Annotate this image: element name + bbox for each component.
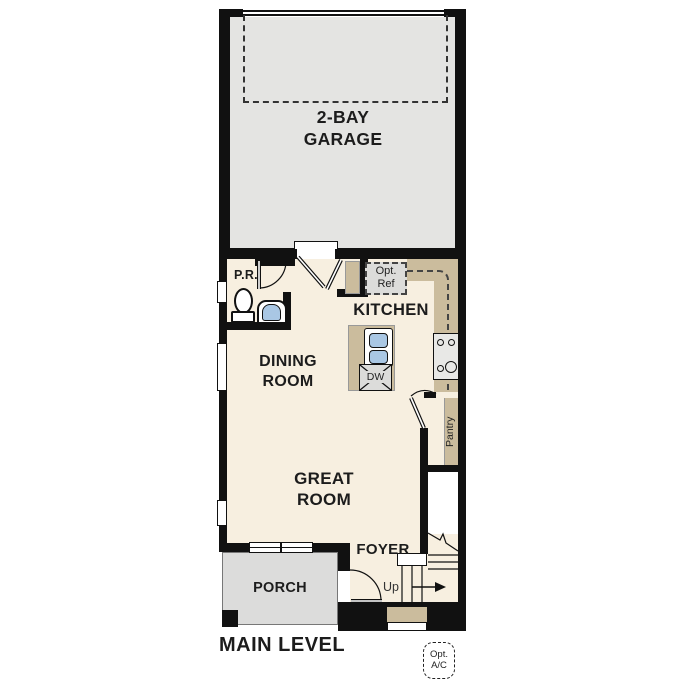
- entry-step: [387, 622, 427, 631]
- pantry-stair-west-wall: [420, 428, 428, 554]
- garage-bottom-wall: [219, 248, 466, 259]
- floor-plan: Opt. Ref Pantry Opt. A/C: [0, 0, 687, 687]
- plan-title: MAIN LEVEL: [219, 633, 379, 658]
- burner: [437, 365, 444, 372]
- right-exterior-wall: [458, 259, 466, 631]
- garage-right-wall: [455, 9, 466, 259]
- porch-post: [222, 610, 238, 627]
- burner: [448, 339, 455, 346]
- stove: [433, 333, 459, 380]
- porch-label: PORCH: [230, 579, 330, 597]
- garage-door-track-dashed-outline: [243, 15, 448, 103]
- powder-room-sink-basin: [262, 304, 281, 321]
- entry-stoop: [387, 607, 427, 622]
- pantry-north-stub: [424, 392, 436, 398]
- powder-room-label: P.R.: [228, 268, 264, 284]
- great-room-label: GREAT ROOM: [274, 468, 374, 511]
- pantry-south-wall: [420, 465, 466, 472]
- powder-room-north-stub: [255, 259, 295, 266]
- foyer-label: FOYER: [353, 541, 413, 560]
- pantry-label: Pantry: [444, 402, 458, 462]
- garage-entry-opening: [295, 249, 337, 259]
- entry-cabinet: [345, 261, 360, 294]
- optional-refrigerator-label: Opt. Ref: [365, 265, 407, 290]
- sink-basin: [369, 333, 388, 348]
- optional-ac-label: Opt. A/C: [423, 650, 455, 672]
- front-door-opening: [338, 571, 350, 602]
- window: [217, 500, 227, 526]
- stairwell-void: [428, 472, 458, 534]
- sink-basin: [369, 350, 388, 364]
- dishwasher-label: DW: [363, 371, 388, 383]
- window: [281, 542, 313, 553]
- window: [249, 542, 281, 553]
- window: [217, 281, 227, 303]
- porch-corner-wall: [338, 543, 350, 571]
- garage-label: 2-BAY GARAGE: [263, 107, 423, 151]
- kitchen-label: KITCHEN: [341, 300, 441, 321]
- burner: [437, 339, 444, 346]
- up-label: Up: [380, 580, 402, 594]
- dining-room-label: DINING ROOM: [238, 352, 338, 392]
- garage-left-wall: [219, 9, 230, 259]
- toilet-tank: [231, 311, 255, 323]
- window: [217, 343, 227, 391]
- garage-top-left-cap: [219, 9, 243, 17]
- burner: [445, 361, 457, 373]
